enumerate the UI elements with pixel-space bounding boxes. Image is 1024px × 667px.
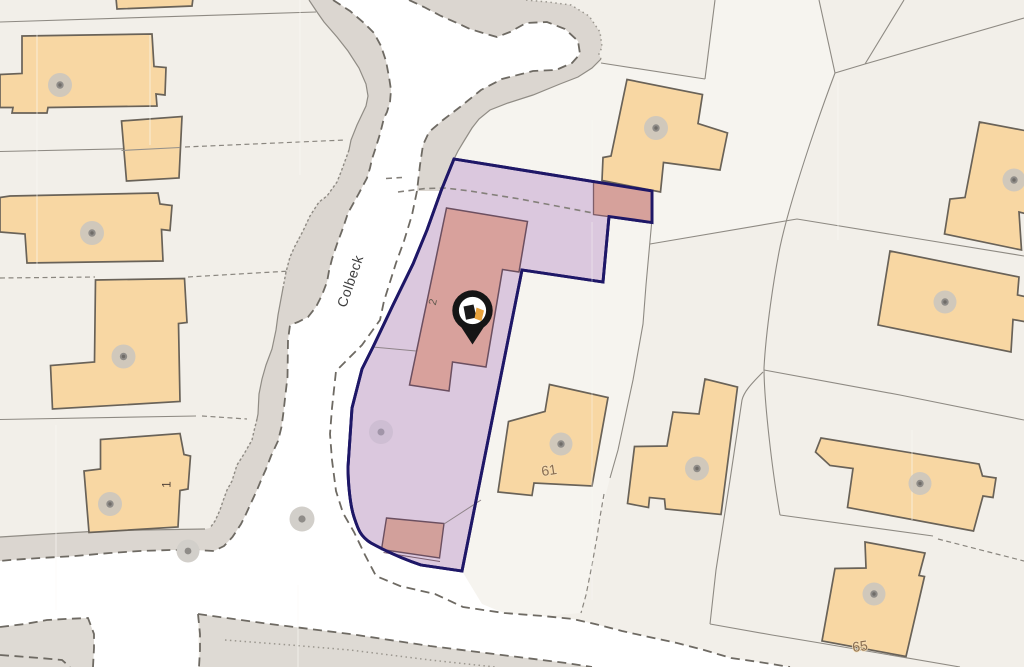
svg-text:61: 61 <box>540 461 558 479</box>
svg-text:65: 65 <box>851 637 869 655</box>
svg-text:1: 1 <box>162 481 174 487</box>
